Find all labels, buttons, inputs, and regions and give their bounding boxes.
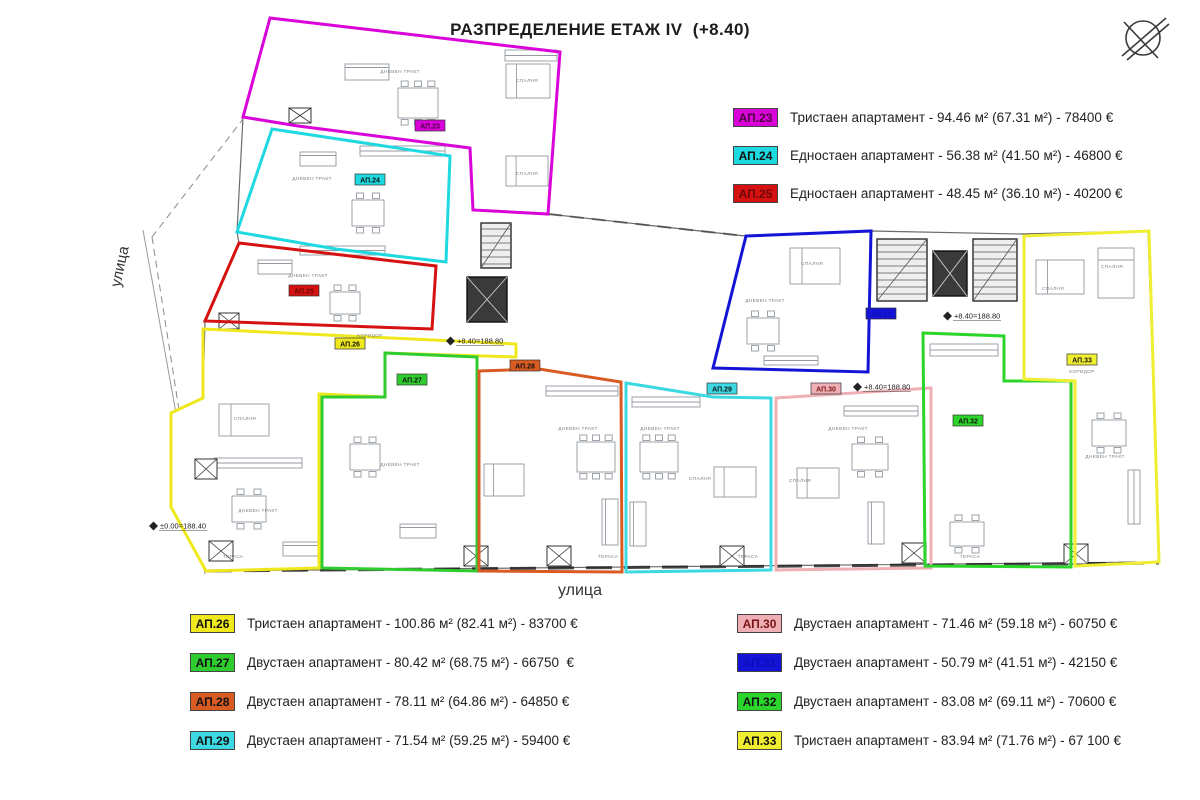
room-label: СПАЛНЯ	[689, 476, 711, 482]
legend-row-ap30: АП.30 Двустаен апартамент - 71.46 м² (59…	[737, 614, 1121, 633]
legend-label-ap27: Двустаен апартамент - 80.42 м² (68.75 м²…	[247, 655, 574, 670]
apartment-chip-ap26: АП.26	[190, 614, 235, 633]
apartment-chip-ap27: АП.27	[190, 653, 235, 672]
room-label: ДНЕВЕН ТРАКТ	[380, 462, 419, 468]
apartment-chip-ap30: АП.30	[737, 614, 782, 633]
plan-chip-label-ap27: АП.27	[402, 378, 422, 385]
table-symbol	[398, 88, 438, 118]
table-symbol	[950, 522, 984, 546]
plan-chip-label-ap31: АП.31	[871, 312, 891, 319]
apartment-chip-ap25: АП.25	[733, 184, 778, 203]
table-symbol	[350, 444, 380, 470]
room-label: ДНЕВЕН ТРАКТ	[238, 508, 277, 514]
room-label: ТЕРАСА	[738, 554, 759, 560]
legend-row-ap26: АП.26 Тристаен апартамент - 100.86 м² (8…	[190, 614, 578, 633]
plan-chip-label-ap28: АП.28	[515, 364, 535, 371]
legend-row-ap24: АП.24 Едностаен апартамент - 56.38 м² (4…	[733, 146, 1123, 165]
apartment-chip-ap32: АП.32	[737, 692, 782, 711]
legend-label-ap25: Едностаен апартамент - 48.45 м² (36.10 м…	[790, 186, 1123, 201]
table-symbol	[330, 292, 360, 314]
legend-label-ap31: Двустаен апартамент - 50.79 м² (41.51 м²…	[794, 655, 1117, 670]
room-label: КОРИДОР	[357, 333, 382, 339]
apartment-chip-ap23: АП.23	[733, 108, 778, 127]
plan-chip-label-ap24: АП.24	[360, 178, 380, 185]
legend-bottom-right: АП.30 Двустаен апартамент - 71.46 м² (59…	[737, 614, 1121, 770]
legend-row-ap29: АП.29 Двустаен апартамент - 71.54 м² (59…	[190, 731, 578, 750]
room-label: СПАЛНЯ	[1042, 286, 1064, 292]
room-label: ДНЕВЕН ТРАКТ	[288, 273, 327, 279]
apartment-chip-ap31: АП.31	[737, 653, 782, 672]
room-label: КОРИДОР	[1069, 369, 1094, 375]
legend-label-ap24: Едностаен апартамент - 56.38 м² (41.50 м…	[790, 148, 1123, 163]
legend-row-ap32: АП.32 Двустаен апартамент - 83.08 м² (69…	[737, 692, 1121, 711]
legend-row-ap33: АП.33 Тристаен апартамент - 83.94 м² (71…	[737, 731, 1121, 750]
elevation-label: +8.40=188.80	[864, 383, 910, 392]
plan-chip-label-ap25: АП.25	[294, 289, 314, 296]
legend-label-ap33: Тристаен апартамент - 83.94 м² (71.76 м²…	[794, 733, 1121, 748]
elevation-diamond	[149, 522, 158, 531]
room-label: ТЕРАСА	[598, 554, 619, 560]
room-label: ДНЕВЕН ТРАКТ	[558, 426, 597, 432]
legend-row-ap31: АП.31 Двустаен апартамент - 50.79 м² (41…	[737, 653, 1121, 672]
legend-row-ap28: АП.28 Двустаен апартамент - 78.11 м² (64…	[190, 692, 578, 711]
apartment-chip-ap33: АП.33	[737, 731, 782, 750]
room-label: СПАЛНЯ	[801, 261, 823, 267]
legend-label-ap32: Двустаен апартамент - 83.08 м² (69.11 м²…	[794, 694, 1116, 709]
plan-chip-label-ap30: АП.30	[816, 387, 836, 394]
room-label: ТЕРАСА	[960, 554, 981, 560]
table-symbol	[352, 200, 384, 226]
plan-chip-label-ap23: АП.23	[420, 124, 440, 131]
street-label-bottom: улица	[505, 582, 655, 600]
room-label: СПАЛНЯ	[1101, 264, 1123, 270]
room-label: ДНЕВЕН ТРАКТ	[640, 426, 679, 432]
legend-bottom-left: АП.26 Тристаен апартамент - 100.86 м² (8…	[190, 614, 578, 770]
plan-chip-label-ap32: АП.32	[958, 419, 978, 426]
room-label: ДНЕВЕН ТРАКТ	[828, 426, 867, 432]
table-symbol	[747, 318, 779, 344]
elevation-label: ±0.00=188.40	[160, 522, 206, 531]
room-label: СПАЛНЯ	[516, 78, 538, 84]
apartment-chip-ap29: АП.29	[190, 731, 235, 750]
room-label: ДНЕВЕН ТРАКТ	[380, 69, 419, 75]
room-label: ТЕРАСА	[223, 554, 244, 560]
table-symbol	[640, 442, 678, 472]
legend-label-ap23: Тристаен апартамент - 94.46 м² (67.31 м²…	[790, 110, 1113, 125]
table-symbol	[1092, 420, 1126, 446]
plan-chip-label-ap33: АП.33	[1072, 358, 1092, 365]
legend-row-ap27: АП.27 Двустаен апартамент - 80.42 м² (68…	[190, 653, 578, 672]
legend-label-ap29: Двустаен апартамент - 71.54 м² (59.25 м²…	[247, 733, 570, 748]
legend-label-ap26: Тристаен апартамент - 100.86 м² (82.41 м…	[247, 616, 578, 631]
room-label: ДНЕВЕН ТРАКТ	[745, 298, 784, 304]
table-symbol	[577, 442, 615, 472]
legend-row-ap23: АП.23 Тристаен апартамент - 94.46 м² (67…	[733, 108, 1123, 127]
legend-label-ap30: Двустаен апартамент - 71.46 м² (59.18 м²…	[794, 616, 1117, 631]
floorplan-page: { "title": "РАЗПРЕДЕЛЕНИЕ ЕТАЖ IV (+8.40…	[0, 0, 1200, 800]
page-title: РАЗПРЕДЕЛЕНИЕ ЕТАЖ IV (+8.40)	[0, 20, 1200, 40]
plan-chip-label-ap26: АП.26	[340, 342, 360, 349]
parcel-dashed-line	[152, 119, 243, 237]
legend-top-right: АП.23 Тристаен апартамент - 94.46 м² (67…	[733, 108, 1123, 222]
elevation-label: +8.40=188.80	[457, 337, 503, 346]
room-label: ДНЕВЕН ТРАКТ	[1085, 454, 1124, 460]
table-symbol	[852, 444, 888, 470]
plan-chip-label-ap29: АП.29	[712, 387, 732, 394]
room-label: СПАЛНЯ	[234, 416, 256, 422]
room-label: СПАЛНЯ	[789, 478, 811, 484]
elevation-label: +8.40=188.80	[954, 312, 1000, 321]
apartment-chip-ap24: АП.24	[733, 146, 778, 165]
legend-row-ap25: АП.25 Едностаен апартамент - 48.45 м² (3…	[733, 184, 1123, 203]
legend-label-ap28: Двустаен апартамент - 78.11 м² (64.86 м²…	[247, 694, 569, 709]
apartment-chip-ap28: АП.28	[190, 692, 235, 711]
room-label: ДНЕВЕН ТРАКТ	[292, 176, 331, 182]
room-label: СПАЛНЯ	[516, 171, 538, 177]
